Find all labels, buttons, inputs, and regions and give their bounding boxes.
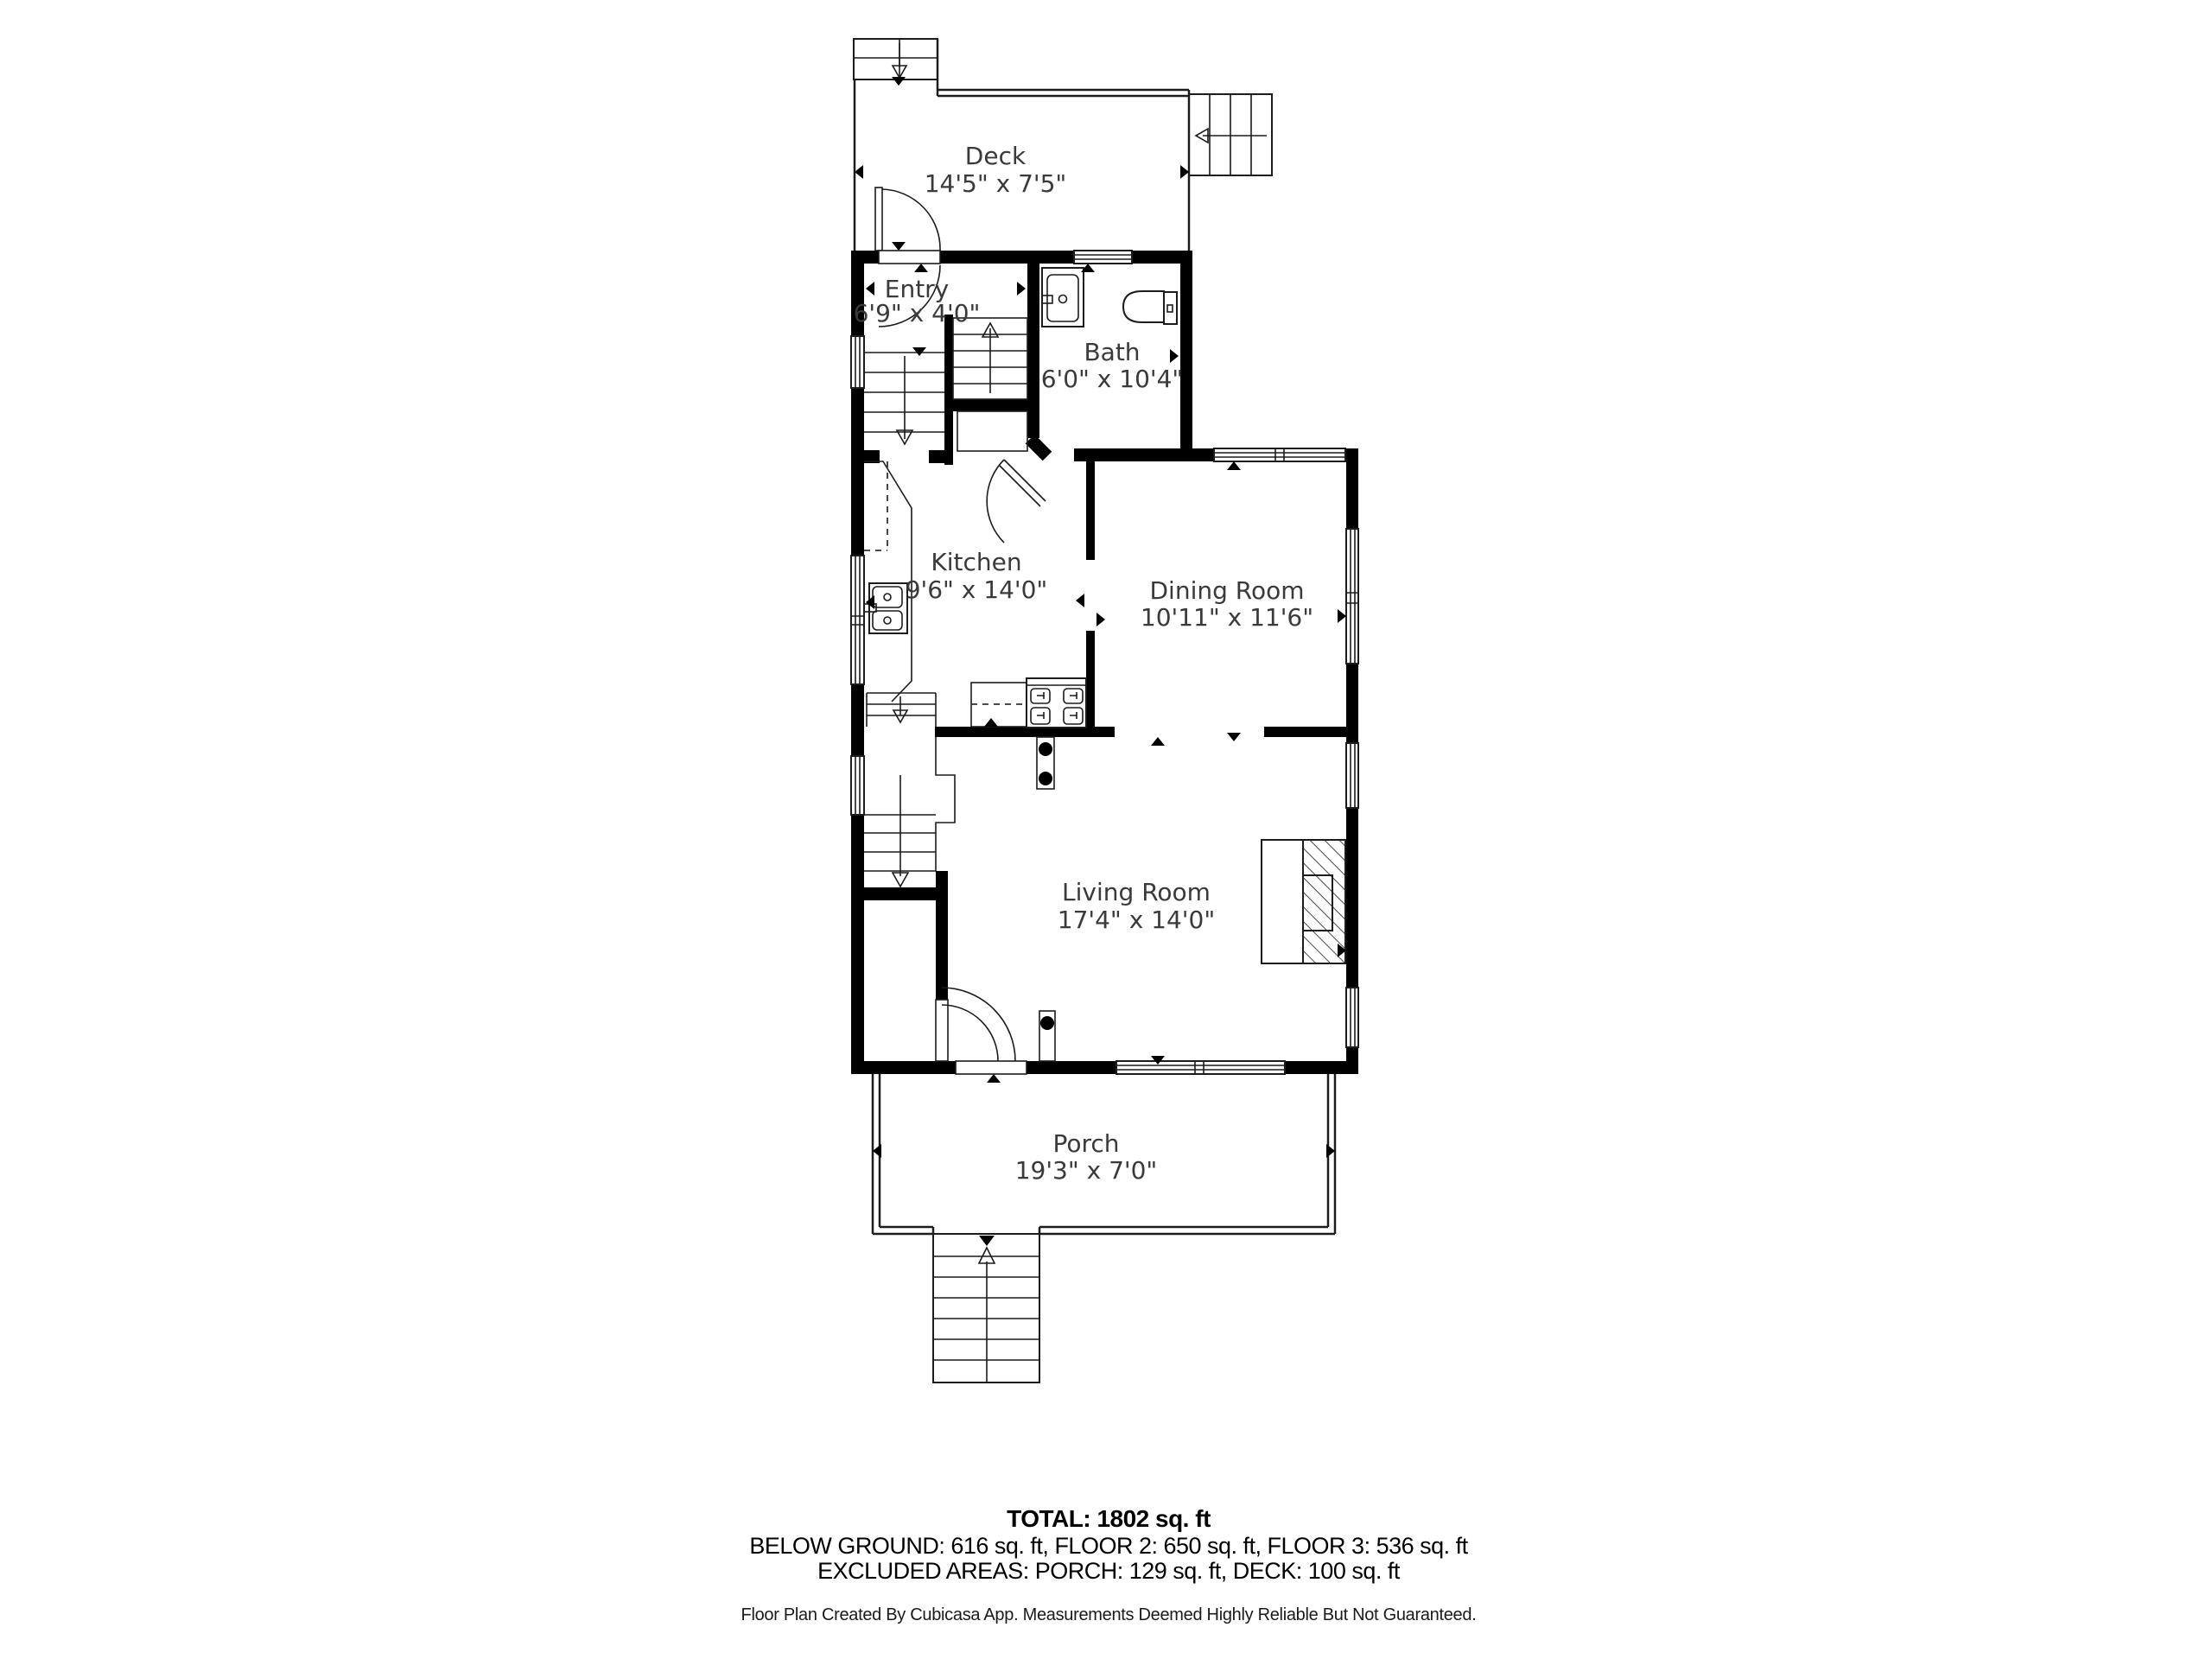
window-living-right-lower-icon [1346,988,1358,1047]
toilet-icon [1123,291,1177,324]
wall-bath-diagonal-stub [1030,439,1047,456]
wall-bath-right [1180,251,1192,461]
stove-icon [1027,678,1086,728]
label-living-dims: 17'4" x 14'0" [1058,906,1215,934]
floor-plan-page: Deck 14'5" x 7'5" Entry 6'9" x 4'0" Bath… [0,0,2212,1659]
wall-stair-divider [944,315,953,465]
window-living-right-upper-icon [1346,743,1358,808]
deck-stairs-top-icon [854,39,938,86]
summary-block: TOTAL: 1802 sq. ft BELOW GROUND: 616 sq.… [741,1505,1477,1624]
column-kitchen-living-icon [1037,737,1054,789]
room-deck [854,39,1272,251]
label-bath-dims: 6'0" x 10'4" [1041,365,1184,393]
wall-under-stair [953,399,1030,411]
door-opening-front [956,1061,1027,1074]
room-porch [873,1074,1335,1382]
label-dining: Dining Room [1149,576,1304,605]
window-dining-right-icon [1346,529,1358,664]
bath-fixtures [1042,268,1177,327]
label-bath: Bath [1084,338,1140,366]
label-deck-dims: 14'5" x 7'5" [925,169,1067,198]
bath-sink-icon [1042,268,1084,327]
wall-stub-mid [929,450,953,463]
stairs-up-icon [953,318,1027,399]
window-kitchen-left-icon [851,556,864,684]
fireplace-icon [1262,840,1345,963]
label-dining-dims: 10'11" x 11'6" [1141,603,1313,632]
label-deck: Deck [965,142,1027,170]
bath-door-icon [987,460,1046,543]
wall-kitchen-living [935,727,1115,737]
wall-vestibule [936,871,948,1000]
summary-excluded: EXCLUDED AREAS: PORCH: 129 sq. ft, DECK:… [817,1558,1401,1584]
wall-entry-bath [1027,264,1039,438]
columns [1037,737,1055,1061]
label-kitchen: Kitchen [931,548,1021,576]
wall-kitchen-dining-upper [1086,461,1095,560]
window-dining-top-icon [1214,448,1345,461]
kitchen-upper-cabinet [864,461,887,550]
stairs-down-icon [864,347,944,444]
label-porch-dims: 19'3" x 7'0" [1015,1156,1158,1185]
doors [879,251,1046,1074]
stairs-basement-lower-icon [864,737,955,887]
door-opening-entry [879,251,940,264]
window-living-front-icon [1116,1061,1285,1074]
column-front-door-icon [1039,1011,1055,1061]
floor-plan-canvas: Deck 14'5" x 7'5" Entry 6'9" x 4'0" Bath… [0,0,2212,1659]
window-entry-left-icon [851,336,864,388]
wall-dining-living [1264,727,1358,737]
porch-stairs-icon [933,1234,1039,1382]
wall-stair-stub [862,887,936,900]
summary-total: TOTAL: 1802 sq. ft [1007,1505,1211,1532]
summary-floors: BELOW GROUND: 616 sq. ft, FLOOR 2: 650 s… [749,1533,1468,1559]
wall-kitchen-dining-lower [1086,631,1095,732]
window-living-left-icon [851,756,864,815]
deck-stairs-side-icon [1189,94,1272,175]
label-porch: Porch [1052,1129,1119,1158]
stairs-basement-upper-icon [867,693,936,727]
footer-disclaimer: Floor Plan Created By Cubicasa App. Meas… [741,1605,1477,1624]
label-kitchen-dims: 9'6" x 14'0" [906,575,1048,604]
stair-closet [957,411,1027,451]
kitchen-side-counter [971,683,1027,727]
label-entry-dims: 6'9" x 4'0" [854,299,981,327]
kitchen-sink-icon [864,583,907,633]
label-living: Living Room [1062,878,1211,906]
window-bath-icon [1074,251,1132,264]
